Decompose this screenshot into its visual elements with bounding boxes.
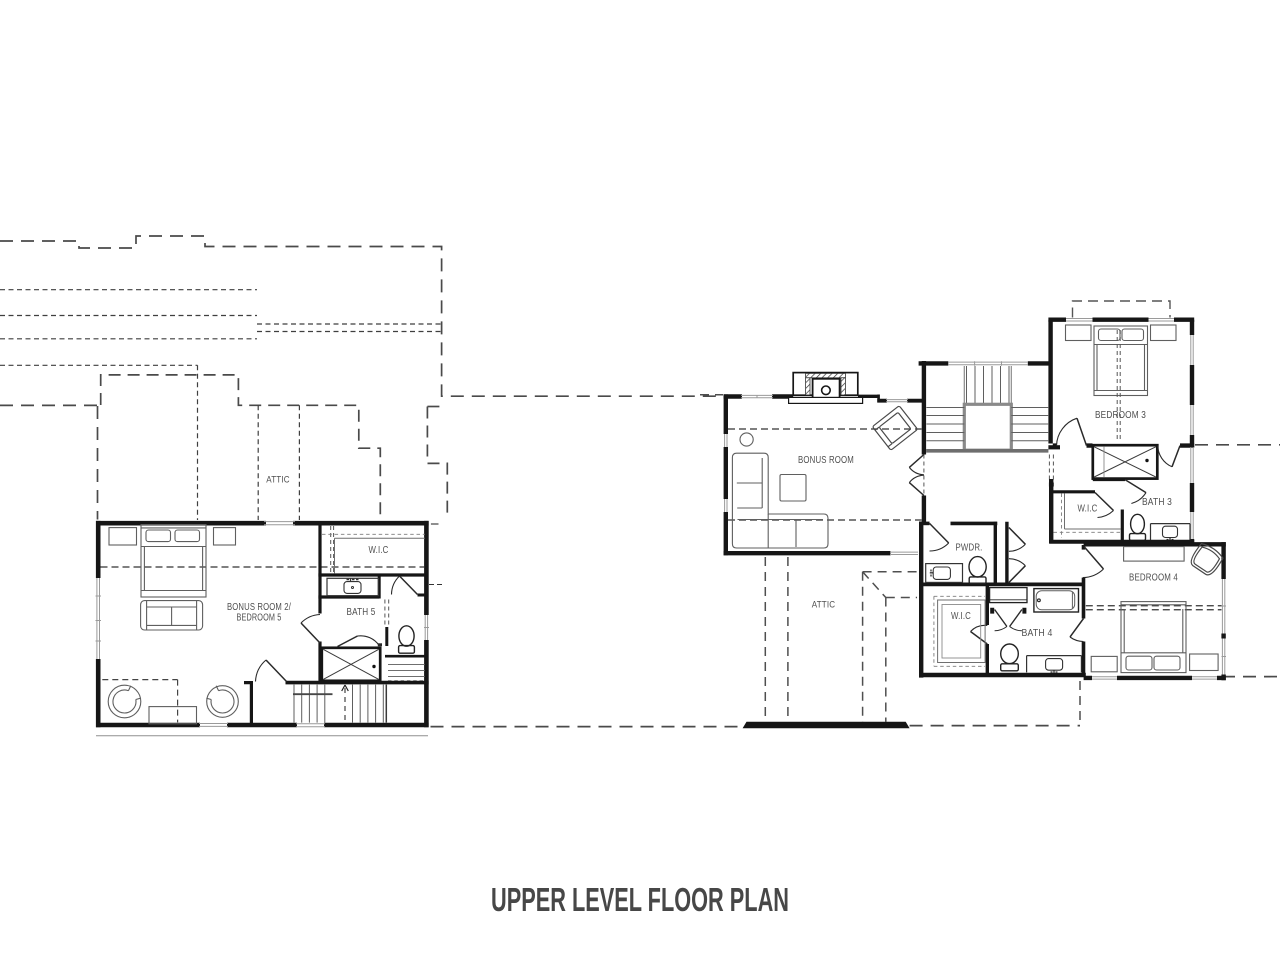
svg-text:ATTIC: ATTIC: [266, 475, 290, 485]
svg-text:BATH 4: BATH 4: [1022, 628, 1053, 639]
svg-text:W.I.C: W.I.C: [369, 545, 389, 556]
svg-text:BEDROOM 5: BEDROOM 5: [237, 613, 282, 624]
svg-text:BONUS ROOM: BONUS ROOM: [798, 455, 854, 466]
svg-text:W.I.C: W.I.C: [951, 611, 971, 622]
svg-text:BATH 5: BATH 5: [347, 607, 376, 618]
svg-text:ATTIC: ATTIC: [812, 600, 836, 610]
svg-text:BONUS ROOM 2/: BONUS ROOM 2/: [227, 602, 291, 613]
svg-text:BEDROOM 4: BEDROOM 4: [1129, 572, 1178, 583]
svg-text:BEDROOM 3: BEDROOM 3: [1095, 410, 1146, 421]
svg-text:W.I.C: W.I.C: [1078, 503, 1098, 514]
svg-text:BATH 3: BATH 3: [1142, 497, 1172, 508]
svg-text:UPPER LEVEL FLOOR PLAN: UPPER LEVEL FLOOR PLAN: [491, 881, 789, 918]
svg-text:PWDR.: PWDR.: [956, 542, 983, 553]
